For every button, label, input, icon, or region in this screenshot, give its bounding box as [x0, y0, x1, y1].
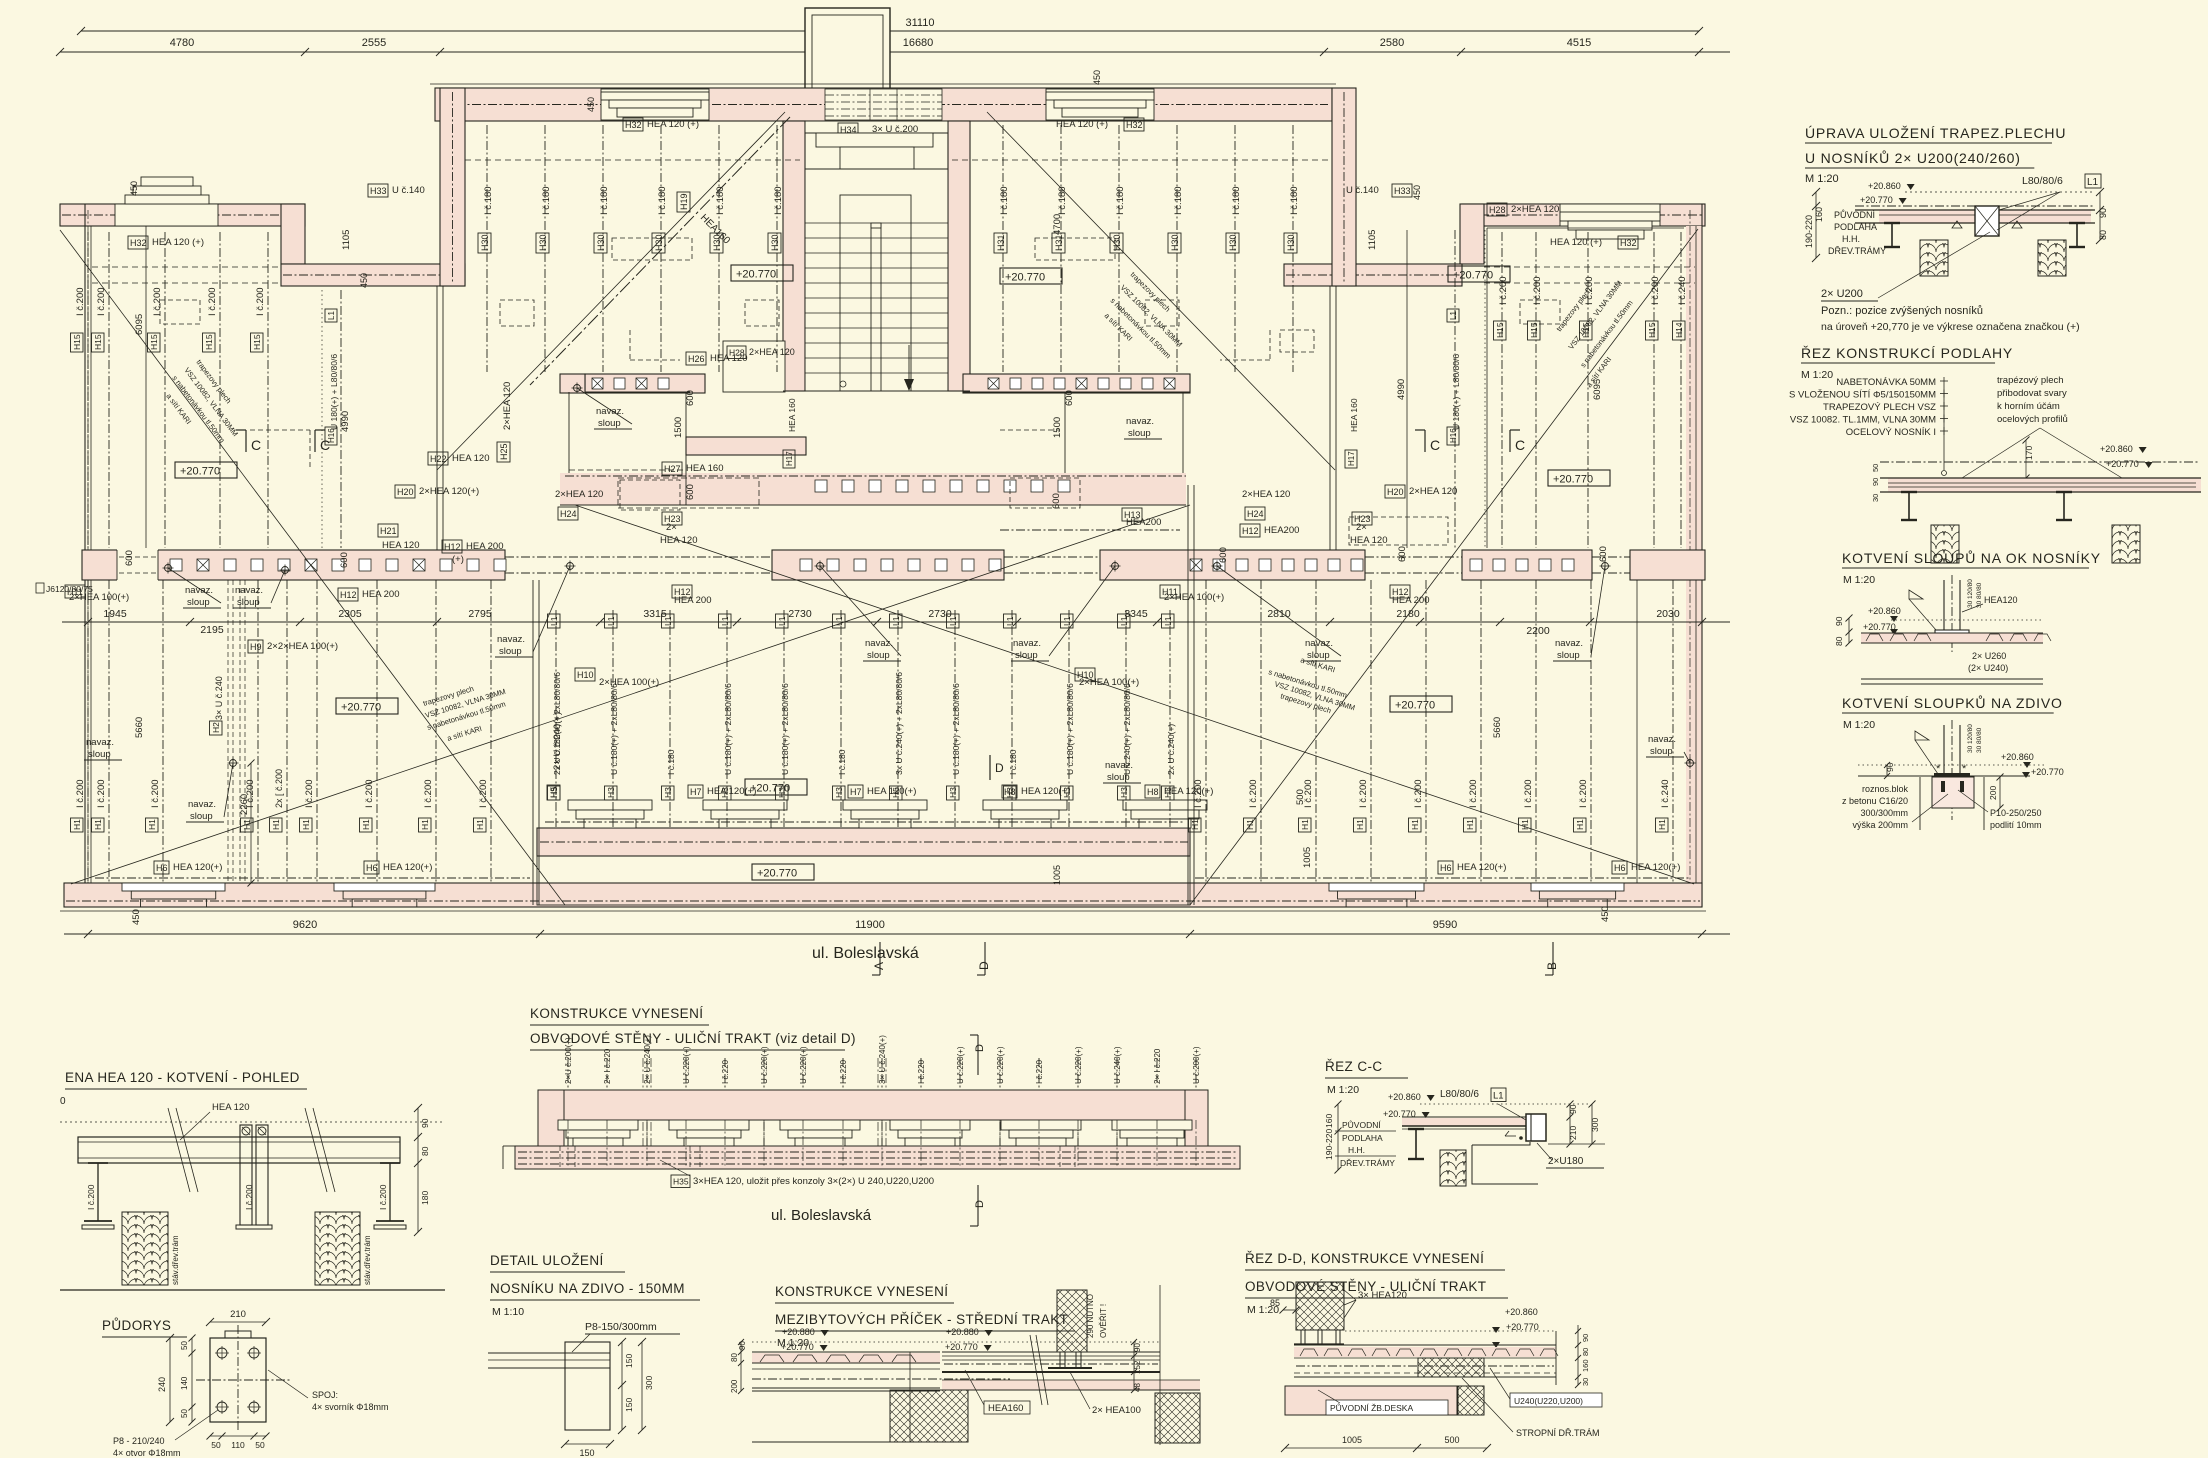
svg-text:2×HEA 120(+): 2×HEA 120(+) — [419, 486, 479, 497]
svg-text:450: 450 — [1600, 906, 1611, 922]
svg-text:U 180(+) + L80/80/6: U 180(+) + L80/80/6 — [329, 354, 339, 430]
svg-text:4700: 4700 — [1052, 214, 1063, 235]
svg-text:HEA 120(+): HEA 120(+) — [173, 862, 222, 873]
svg-text:HEA200: HEA200 — [1264, 525, 1299, 536]
svg-text:2730: 2730 — [788, 608, 812, 620]
svg-text:H1: H1 — [93, 819, 103, 830]
svg-text:I č.220: I č.220 — [1035, 1059, 1044, 1084]
svg-text:H26: H26 — [688, 354, 705, 364]
svg-text:ŘEZ D-D, KONSTRUKCE VYNESEN: ŘEZ D-D, KONSTRUKCE VYNESENÍ — [1245, 1251, 1484, 1266]
svg-text:HEA 120(+): HEA 120(+) — [867, 786, 916, 797]
svg-text:S VLOŽENOU SÍTÍ Φ5/150150MM: S VLOŽENOU SÍTÍ Φ5/150150MM — [1789, 390, 1936, 401]
svg-text:I č.180: I č.180 — [1115, 186, 1126, 215]
svg-text:I č.180: I č.180 — [1008, 749, 1018, 775]
svg-text:+20.770: +20.770 — [1395, 700, 1435, 712]
svg-text:H10: H10 — [577, 670, 594, 680]
svg-text:H12: H12 — [340, 590, 357, 600]
svg-text:H30: H30 — [654, 234, 664, 251]
svg-text:L1: L1 — [606, 616, 616, 626]
svg-text:4990: 4990 — [340, 411, 351, 432]
svg-text:OVĚŘIT !: OVĚŘIT ! — [1099, 1304, 1108, 1338]
svg-text:HEA 160: HEA 160 — [1349, 398, 1359, 432]
svg-text:U č.220(+): U č.220(+) — [682, 1046, 691, 1084]
svg-text:D: D — [977, 961, 991, 970]
svg-text:160: 160 — [1581, 1359, 1590, 1372]
svg-text:navaz.: navaz. — [1013, 638, 1041, 649]
svg-text:2×: 2× — [666, 522, 677, 533]
svg-text:150: 150 — [579, 1448, 594, 1458]
svg-text:I č.200: I č.200 — [1248, 779, 1259, 808]
svg-text:HEA 120 (+): HEA 120 (+) — [647, 119, 699, 130]
svg-text:30 120/80: 30 120/80 — [1967, 579, 1974, 608]
svg-text:ÚPRAVA ULOŽENÍ TRAPEZ.PLECHU: ÚPRAVA ULOŽENÍ TRAPEZ.PLECHU — [1805, 125, 2066, 141]
svg-text:3×HEA 120, uložit přes konzoly: 3×HEA 120, uložit přes konzoly 3×(2×) U … — [693, 1176, 934, 1187]
svg-text:2×U180: 2×U180 — [1548, 1156, 1584, 1167]
svg-text:2x [ č.200: 2x [ č.200 — [274, 769, 284, 808]
svg-text:HEA 200: HEA 200 — [362, 589, 400, 600]
svg-text:180: 180 — [420, 1191, 430, 1205]
svg-text:H1: H1 — [147, 819, 157, 830]
svg-text:+20.770: +20.770 — [1506, 1322, 1539, 1332]
svg-text:H25: H25 — [499, 443, 509, 460]
svg-text:L1: L1 — [777, 616, 787, 626]
svg-text:9620: 9620 — [293, 919, 317, 931]
svg-text:H1: H1 — [1657, 819, 1667, 830]
svg-text:HEA 200: HEA 200 — [1392, 595, 1430, 606]
svg-text:sloup: sloup — [1307, 650, 1330, 661]
svg-text:I č.200: I č.200 — [255, 287, 266, 316]
svg-text:90: 90 — [1568, 1104, 1578, 1114]
svg-text:HEA 120 (+): HEA 120 (+) — [152, 237, 204, 248]
svg-text:H3: H3 — [663, 787, 673, 798]
svg-text:H1: H1 — [1355, 819, 1365, 830]
svg-text:H1: H1 — [1410, 819, 1420, 830]
svg-text:MEZIBYTOVÝCH PŘÍČEK - STŘED: MEZIBYTOVÝCH PŘÍČEK - STŘEDNÍ TRAKT — [775, 1312, 1068, 1327]
svg-text:H3: H3 — [948, 787, 958, 798]
svg-text:+20.860: +20.860 — [2100, 444, 2133, 454]
svg-text:2260: 2260 — [239, 794, 250, 815]
svg-text:H15: H15 — [149, 334, 159, 350]
svg-text:150: 150 — [624, 1398, 634, 1412]
svg-text:U č.140: U č.140 — [392, 185, 425, 196]
svg-text:140: 140 — [180, 1376, 189, 1390]
svg-text:I č.180: I č.180 — [483, 186, 494, 215]
svg-text:31110: 31110 — [906, 17, 935, 29]
svg-text:I č.180: I č.180 — [773, 186, 784, 215]
svg-text:sloup: sloup — [1107, 772, 1130, 783]
svg-text:600: 600 — [685, 484, 696, 500]
svg-text:B: B — [1545, 962, 1559, 970]
svg-text:450: 450 — [129, 181, 139, 196]
svg-text:H16: H16 — [1449, 428, 1458, 443]
svg-text:160: 160 — [1324, 1114, 1334, 1128]
svg-text:2×HEA 100(+): 2×HEA 100(+) — [69, 592, 129, 603]
svg-text:2730: 2730 — [928, 608, 952, 620]
svg-text:HEA 120: HEA 120 — [1350, 535, 1388, 546]
svg-text:80: 80 — [730, 1353, 739, 1362]
svg-text:H3: H3 — [1119, 787, 1129, 798]
svg-text:A: A — [872, 962, 886, 970]
svg-text:M 1:20: M 1:20 — [1801, 369, 1833, 381]
svg-text:H31: H31 — [1054, 234, 1064, 251]
svg-text:L1: L1 — [1062, 616, 1072, 626]
svg-text:sloup: sloup — [1015, 650, 1038, 661]
svg-text:I č.240: I č.240 — [1660, 779, 1671, 808]
svg-text:sloup: sloup — [1557, 650, 1580, 661]
svg-text:I č.240: I č.240 — [1677, 276, 1688, 305]
svg-text:I č.200: I č.200 — [1358, 779, 1369, 808]
svg-text:L1: L1 — [1163, 616, 1173, 626]
svg-text:H1: H1 — [475, 819, 485, 830]
svg-text:H19: H19 — [679, 193, 689, 210]
svg-text:H15: H15 — [252, 334, 262, 350]
svg-text:PŮVODNÍ ŽB.DESKA: PŮVODNÍ ŽB.DESKA — [1330, 1402, 1413, 1413]
svg-text:sloup: sloup — [499, 646, 522, 657]
svg-text:+20.880: +20.880 — [946, 1327, 979, 1337]
svg-text:I č.200: I č.200 — [96, 779, 107, 808]
svg-text:1005: 1005 — [1052, 865, 1062, 885]
svg-text:90: 90 — [2098, 208, 2108, 218]
svg-text:KONSTRUKCE VYNESENÍ: KONSTRUKCE VYNESENÍ — [530, 1006, 703, 1021]
svg-text:2×HEA 100(+): 2×HEA 100(+) — [599, 677, 659, 688]
svg-text:2× U260: 2× U260 — [1972, 651, 2006, 661]
svg-text:PŮVODNÍ: PŮVODNÍ — [1342, 1119, 1381, 1130]
svg-text:+20.860: +20.860 — [1388, 1092, 1421, 1102]
svg-text:H6: H6 — [156, 863, 168, 873]
svg-text:+20.770: +20.770 — [1863, 622, 1896, 632]
svg-text:H20: H20 — [397, 487, 414, 497]
svg-text:H5: H5 — [549, 786, 559, 798]
svg-text:I č.200: I č.200 — [75, 287, 86, 316]
svg-text:+20.860: +20.860 — [1868, 181, 1901, 191]
svg-text:I č.200: I č.200 — [1523, 779, 1534, 808]
svg-text:L1: L1 — [1449, 311, 1458, 320]
svg-text:HEA 200: HEA 200 — [466, 541, 504, 552]
svg-text:H21: H21 — [380, 526, 397, 536]
svg-text:2× I č.220: 2× I č.220 — [603, 1048, 612, 1084]
svg-text:6095: 6095 — [134, 314, 145, 335]
svg-text:+20.770: +20.770 — [945, 1342, 978, 1352]
svg-text:600: 600 — [1051, 493, 1062, 509]
svg-text:U NOSNÍKŮ 2× U200(240/260): U NOSNÍKŮ 2× U200(240/260) — [1805, 149, 2021, 166]
svg-text:navaz.: navaz. — [188, 799, 216, 810]
svg-text:H.H.: H.H. — [1348, 1145, 1365, 1155]
svg-text:3× HEA120: 3× HEA120 — [1358, 1290, 1407, 1301]
svg-text:+20.770: +20.770 — [1005, 272, 1045, 284]
svg-text:200: 200 — [1988, 786, 1998, 800]
svg-text:L1: L1 — [720, 616, 730, 626]
svg-text:HEA120: HEA120 — [1984, 595, 2018, 605]
svg-text:výška 200mm: výška 200mm — [1852, 820, 1908, 830]
svg-text:HEA 200: HEA 200 — [674, 595, 712, 606]
svg-text:+20.770: +20.770 — [1860, 195, 1893, 205]
svg-text:L1: L1 — [2087, 177, 2099, 188]
svg-text:sloup: sloup — [190, 811, 213, 822]
svg-text:U č.220(+): U č.220(+) — [799, 1046, 808, 1084]
svg-text:sloup: sloup — [187, 597, 210, 608]
svg-text:2× HEA100: 2× HEA100 — [1092, 1405, 1141, 1416]
svg-text:450: 450 — [359, 273, 369, 288]
svg-text:2×HEA 120: 2×HEA 120 — [555, 489, 603, 500]
svg-text:ŘEZ C-C: ŘEZ C-C — [1325, 1059, 1383, 1074]
svg-text:9590: 9590 — [1433, 919, 1457, 931]
svg-text:I č.200: I č.200 — [86, 1184, 96, 1210]
svg-text:H7: H7 — [690, 787, 702, 797]
svg-text:H35: H35 — [673, 1177, 689, 1187]
svg-text:500: 500 — [1295, 789, 1306, 805]
svg-text:11900: 11900 — [855, 919, 885, 931]
svg-text:I č.180: I č.180 — [1289, 186, 1300, 215]
svg-text:190-220: 190-220 — [1324, 1129, 1334, 1160]
svg-text:D: D — [974, 1044, 986, 1052]
svg-text:navaz.: navaz. — [86, 737, 114, 748]
svg-text:L1: L1 — [327, 311, 336, 320]
svg-text:80: 80 — [1834, 636, 1844, 646]
svg-text:L80/80/6: L80/80/6 — [1440, 1089, 1479, 1100]
svg-text:H15: H15 — [1647, 322, 1657, 338]
svg-text:H3: H3 — [834, 787, 844, 798]
svg-text:H17: H17 — [785, 451, 794, 466]
svg-text:I č.180: I č.180 — [657, 186, 668, 215]
svg-text:2×U č.200(+): 2×U č.200(+) — [564, 1037, 573, 1084]
svg-text:30: 30 — [1871, 494, 1880, 502]
svg-text:I č.200: I č.200 — [207, 287, 218, 316]
svg-text:D: D — [974, 1200, 986, 1208]
svg-text:HEA 120(+): HEA 120(+) — [1021, 786, 1070, 797]
svg-text:2×HEA 120: 2×HEA 120 — [1409, 486, 1457, 497]
svg-text:KOTVENÍ SLOUPKŮ NA ZDIVO: KOTVENÍ SLOUPKŮ NA ZDIVO — [1842, 694, 2063, 711]
svg-text:I č.200: I č.200 — [1413, 779, 1424, 808]
svg-text:450: 450 — [131, 909, 142, 925]
svg-text:PODLAHA: PODLAHA — [1834, 222, 1877, 232]
svg-text:2×HEA 120: 2×HEA 120 — [749, 347, 795, 357]
svg-text:2× U200: 2× U200 — [1821, 288, 1863, 300]
svg-text:1005: 1005 — [1342, 1435, 1362, 1445]
svg-text:H9: H9 — [250, 642, 262, 652]
svg-text:600: 600 — [339, 552, 350, 568]
svg-text:navaz.: navaz. — [865, 638, 893, 649]
svg-text:90: 90 — [1871, 478, 1880, 486]
svg-text:trapézový plech: trapézový plech — [1997, 375, 2064, 386]
svg-text:+20.770: +20.770 — [2106, 459, 2139, 469]
svg-text:sloup: sloup — [867, 650, 890, 661]
svg-text:navaz.: navaz. — [1126, 416, 1154, 427]
svg-text:navaz.: navaz. — [596, 406, 624, 417]
svg-text:I č.200: I č.200 — [244, 1184, 254, 1210]
svg-text:H30: H30 — [538, 234, 548, 251]
svg-text:6095: 6095 — [1592, 379, 1603, 400]
svg-text:I č.200: I č.200 — [1468, 779, 1479, 808]
svg-text:C: C — [251, 437, 261, 453]
svg-text:I č.180: I č.180 — [666, 749, 676, 775]
svg-text:90: 90 — [1834, 616, 1844, 626]
svg-text:500: 500 — [1444, 1435, 1459, 1445]
svg-text:NABETONÁVKA 50MM: NABETONÁVKA 50MM — [1836, 377, 1936, 388]
svg-text:170: 170 — [2024, 446, 2034, 460]
svg-text:200: 200 — [730, 1379, 739, 1393]
svg-text:U č.140: U č.140 — [1346, 185, 1379, 196]
svg-text:I č.200: I č.200 — [1578, 779, 1589, 808]
svg-text:H15: H15 — [1529, 322, 1539, 338]
svg-text:80: 80 — [2098, 230, 2108, 240]
svg-text:2795: 2795 — [468, 608, 492, 620]
svg-text:I č.180: I č.180 — [1173, 186, 1184, 215]
svg-text:HEA 120(+): HEA 120(+) — [1631, 862, 1680, 873]
svg-text:I č.180: I č.180 — [1057, 186, 1068, 215]
svg-text:HEA 120 (+): HEA 120 (+) — [1550, 237, 1602, 248]
svg-text:50: 50 — [180, 1341, 189, 1350]
svg-text:H33: H33 — [1394, 186, 1411, 196]
svg-text:I č.200: I č.200 — [1498, 276, 1509, 305]
svg-text:OBVODOVÉ STĚNY - ULIČNÍ TR: OBVODOVÉ STĚNY - ULIČNÍ TRAKT (viz detai… — [530, 1031, 856, 1046]
svg-text:H30: H30 — [1170, 234, 1180, 251]
svg-text:U č.220(+): U č.220(+) — [996, 1046, 1005, 1084]
svg-text:PŮVODNÍ: PŮVODNÍ — [1834, 209, 1876, 220]
svg-text:M 1:20: M 1:20 — [1327, 1084, 1359, 1096]
svg-text:2× U č.240(+): 2× U č.240(+) — [552, 712, 563, 770]
svg-text:H1: H1 — [361, 819, 371, 830]
svg-text:HEA 120: HEA 120 — [382, 540, 420, 551]
svg-text:50: 50 — [180, 1409, 189, 1418]
svg-text:H12: H12 — [1242, 526, 1259, 536]
svg-text:2555: 2555 — [362, 37, 386, 49]
svg-text:NOSNÍKU NA ZDIVO - 150MM: NOSNÍKU NA ZDIVO - 150MM — [490, 1281, 685, 1296]
svg-text:H15: H15 — [72, 334, 82, 350]
svg-text:90: 90 — [1885, 762, 1895, 772]
svg-text:210: 210 — [1568, 1126, 1578, 1140]
svg-text:600: 600 — [685, 390, 696, 406]
svg-text:HEA200: HEA200 — [1126, 517, 1161, 528]
svg-text:sloup: sloup — [1128, 428, 1151, 439]
svg-text:150: 150 — [624, 1354, 634, 1368]
svg-text:STROPNÍ DŘ.TRÁM: STROPNÍ DŘ.TRÁM — [1516, 1428, 1600, 1438]
svg-text:+20.860: +20.860 — [1505, 1307, 1538, 1317]
svg-text:2×HEA 100(+): 2×HEA 100(+) — [1079, 677, 1139, 688]
svg-text:H1: H1 — [301, 819, 311, 830]
svg-text:U č.220(+): U č.220(+) — [956, 1046, 965, 1084]
svg-text:600: 600 — [1064, 390, 1075, 406]
svg-text:D: D — [995, 761, 1004, 775]
svg-text:2305: 2305 — [338, 608, 362, 620]
svg-text:I č.200: I č.200 — [378, 1184, 388, 1210]
svg-text:2×HEA 120: 2×HEA 120 — [502, 382, 513, 430]
svg-text:L1: L1 — [549, 616, 559, 626]
svg-text:Pozn.: pozice zvýšených nosník: Pozn.: pozice zvýšených nosníků — [1821, 305, 1983, 317]
svg-text:2x U č.240(+): 2x U č.240(+) — [1166, 724, 1176, 775]
svg-text:U č.240(+): U č.240(+) — [1113, 1046, 1122, 1084]
svg-text:navaz.: navaz. — [1105, 760, 1133, 771]
svg-text:H1: H1 — [1190, 819, 1200, 830]
svg-text:160: 160 — [1814, 207, 1824, 222]
svg-text:I č.220: I č.220 — [721, 1059, 730, 1084]
svg-text:I č.200: I č.200 — [1532, 276, 1543, 305]
svg-text:H32: H32 — [1620, 238, 1637, 248]
svg-text:podlití 10mm: podlití 10mm — [1990, 820, 2042, 830]
svg-text:H14: H14 — [1674, 322, 1684, 338]
svg-text:KONSTRUKCE VYNESENÍ: KONSTRUKCE VYNESENÍ — [775, 1284, 948, 1299]
svg-text:HEA160: HEA160 — [988, 1403, 1023, 1414]
svg-text:sloup: sloup — [88, 749, 111, 760]
svg-text:50: 50 — [1871, 464, 1880, 472]
svg-text:U č.180(+) + 2xL80/80/6: U č.180(+) + 2xL80/80/6 — [780, 683, 790, 775]
svg-text:H24: H24 — [560, 509, 577, 519]
svg-text:HEA 120: HEA 120 — [452, 453, 490, 464]
svg-text:H24: H24 — [1247, 509, 1264, 519]
svg-text:H1: H1 — [271, 819, 281, 830]
svg-text:3315: 3315 — [643, 608, 667, 620]
svg-text:300/300mm: 300/300mm — [1860, 808, 1908, 818]
svg-text:+20.880: +20.880 — [782, 1327, 815, 1337]
svg-text:H6: H6 — [366, 863, 378, 873]
svg-text:H15: H15 — [93, 334, 103, 350]
svg-text:L1: L1 — [891, 616, 901, 626]
svg-text:I č.200: I č.200 — [304, 779, 315, 808]
svg-text:+20.860: +20.860 — [2001, 752, 2034, 762]
svg-text:600: 600 — [1218, 547, 1229, 563]
svg-text:290 NUTNO: 290 NUTNO — [1086, 1294, 1095, 1338]
svg-text:L1: L1 — [834, 616, 844, 626]
svg-text:H32: H32 — [1126, 120, 1143, 130]
svg-text:2×2×HEA 100(+): 2×2×HEA 100(+) — [267, 641, 338, 652]
svg-text:C: C — [320, 437, 330, 453]
svg-text:PŮDORYS: PŮDORYS — [102, 1318, 171, 1333]
svg-text:2×HEA 120: 2×HEA 120 — [1511, 204, 1559, 215]
svg-text:H1: H1 — [1575, 819, 1585, 830]
svg-text:C: C — [1430, 437, 1440, 453]
svg-text:sloup: sloup — [1650, 746, 1673, 757]
svg-text:4990: 4990 — [1396, 379, 1407, 400]
svg-text:2030: 2030 — [1656, 608, 1680, 620]
svg-text:U č.180(+) + 2xL80/80/6: U č.180(+) + 2xL80/80/6 — [1065, 683, 1075, 775]
svg-text:DŘEV.TRÁMY: DŘEV.TRÁMY — [1828, 246, 1886, 256]
svg-text:+20.770: +20.770 — [736, 269, 776, 281]
svg-text:190-220: 190-220 — [1804, 215, 1814, 248]
svg-text:30 120/80: 30 120/80 — [1967, 724, 1974, 753]
svg-text:+20.770: +20.770 — [757, 868, 797, 880]
svg-text:M 1:20: M 1:20 — [1843, 719, 1875, 731]
svg-text:L1: L1 — [1493, 1091, 1504, 1102]
svg-text:H30: H30 — [770, 234, 780, 251]
svg-text:2180: 2180 — [1396, 608, 1420, 620]
svg-text:H8: H8 — [1147, 787, 1159, 797]
svg-text:OCELOVÝ NOSNÍK I: OCELOVÝ NOSNÍK I — [1846, 427, 1936, 438]
svg-text:2580: 2580 — [1380, 37, 1404, 49]
svg-text:+20.770: +20.770 — [781, 1342, 814, 1352]
svg-text:I č.200: I č.200 — [150, 779, 161, 808]
svg-text:1005: 1005 — [1302, 847, 1313, 868]
svg-text:ul. Boleslavská: ul. Boleslavská — [812, 945, 919, 962]
svg-text:U 180(+) + L80/80/6: U 180(+) + L80/80/6 — [1451, 354, 1461, 430]
svg-text:50: 50 — [255, 1440, 265, 1450]
svg-text:H1: H1 — [72, 819, 82, 830]
svg-text:H32: H32 — [625, 120, 642, 130]
svg-text:80: 80 — [420, 1146, 430, 1156]
svg-text:1945: 1945 — [103, 608, 127, 620]
svg-text:50: 50 — [211, 1440, 221, 1450]
svg-text:300: 300 — [1590, 1118, 1600, 1132]
svg-text:*: * — [1936, 763, 1941, 775]
svg-text:90: 90 — [420, 1118, 430, 1128]
svg-text:H20: H20 — [1387, 487, 1404, 497]
svg-text:4× otvor Φ18mm: 4× otvor Φ18mm — [113, 1448, 180, 1458]
svg-text:navaz.: navaz. — [497, 634, 525, 645]
svg-text:I č.220: I č.220 — [917, 1059, 926, 1084]
svg-text:85: 85 — [1270, 1298, 1280, 1308]
svg-text:80: 80 — [1581, 1348, 1590, 1356]
svg-text:2810: 2810 — [1267, 608, 1291, 620]
svg-text:P10-250/250: P10-250/250 — [1990, 808, 2042, 818]
svg-text:2×HEA 120: 2×HEA 120 — [1242, 489, 1290, 500]
